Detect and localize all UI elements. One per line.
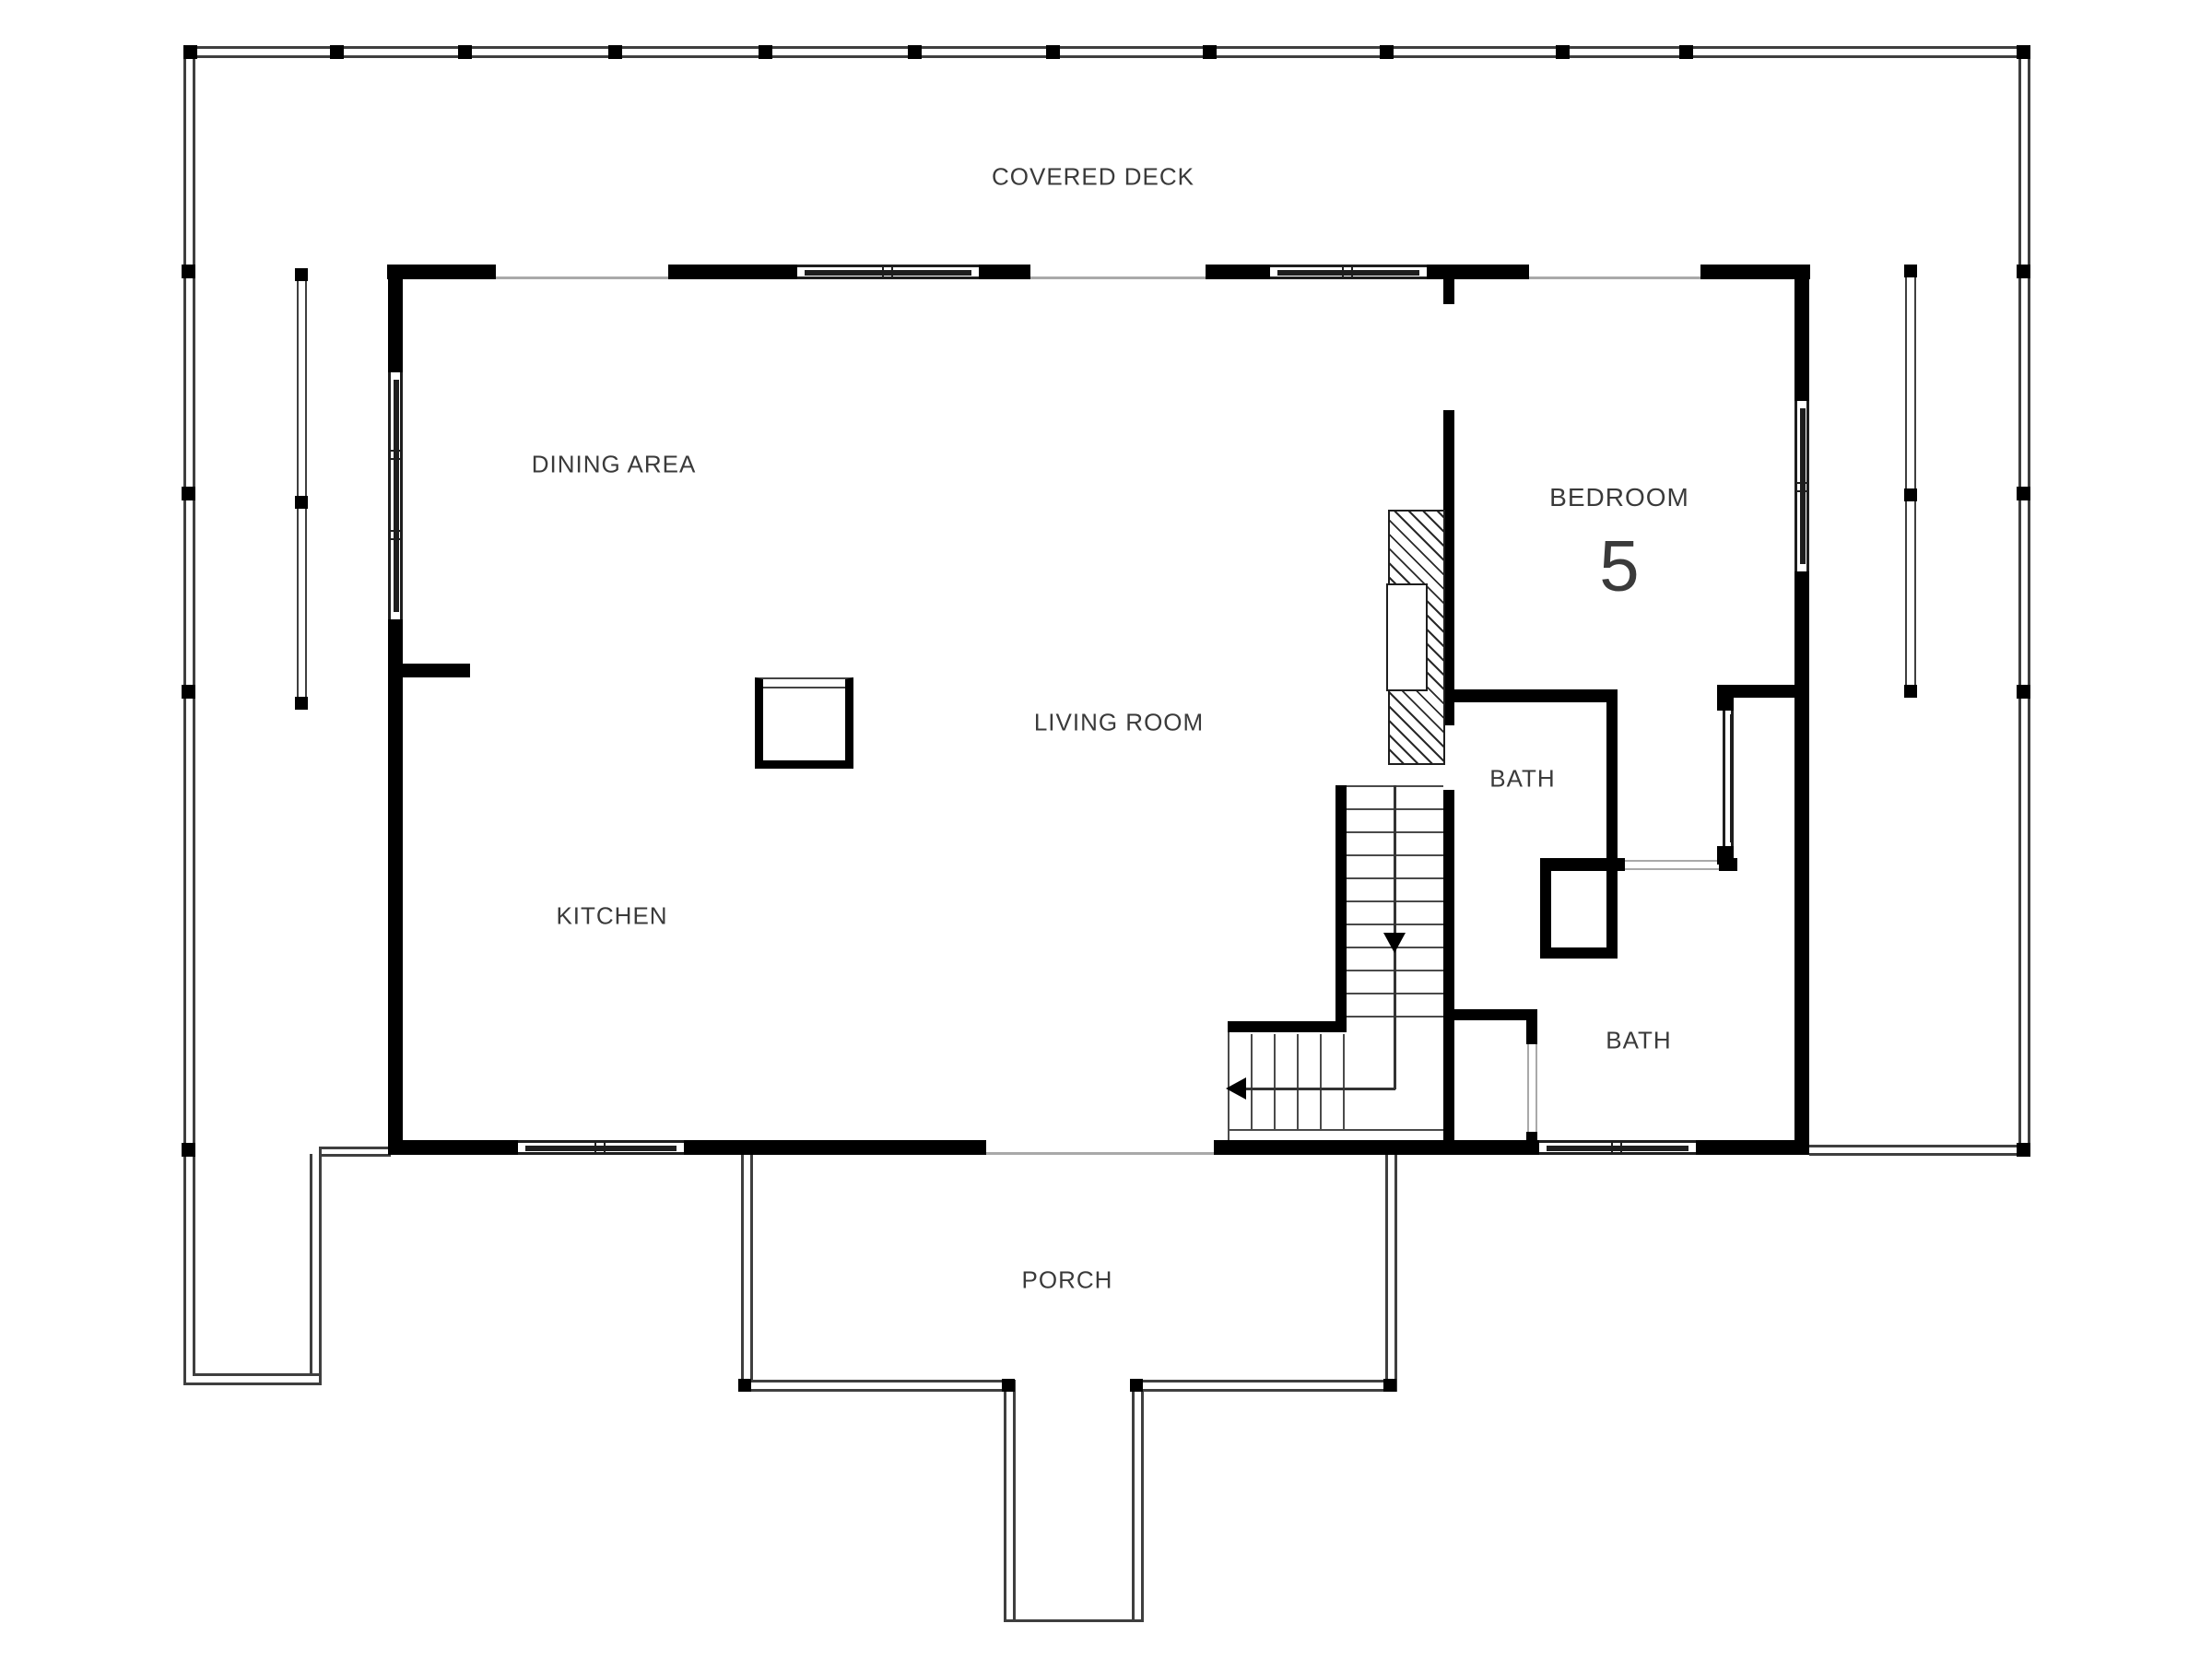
wall xyxy=(1526,1020,1537,1044)
wall xyxy=(1717,698,1734,711)
deck-post xyxy=(1380,45,1394,59)
porch-line xyxy=(1141,1380,1397,1382)
wall xyxy=(403,664,470,677)
window xyxy=(797,265,979,279)
window xyxy=(388,372,403,619)
deck-post xyxy=(2017,685,2030,699)
wall xyxy=(1606,702,1618,959)
stair-wall xyxy=(1335,785,1347,1032)
wall xyxy=(1540,858,1618,871)
door-opening-line xyxy=(1625,860,1719,862)
label-kitchen: KITCHEN xyxy=(556,902,667,931)
stair-wall xyxy=(1228,1021,1347,1032)
stair-direction-down-arrow-icon xyxy=(1383,933,1406,953)
wall xyxy=(1443,790,1454,1155)
label-bath-upper: BATH xyxy=(1489,765,1555,794)
label-bath-lower: BATH xyxy=(1606,1027,1671,1055)
porch-line xyxy=(1013,1380,1016,1622)
deck-line xyxy=(319,1154,391,1157)
deck-line xyxy=(193,1373,319,1376)
stair-tread xyxy=(1320,1034,1322,1129)
wall xyxy=(668,265,797,279)
deck-line xyxy=(2018,55,2021,1147)
deck-post xyxy=(330,45,344,59)
deck-line xyxy=(319,1147,391,1149)
stair-tread xyxy=(1274,1034,1276,1129)
porch-line xyxy=(1132,1380,1135,1622)
deck-post xyxy=(2017,45,2030,59)
deck-line xyxy=(1809,1145,2030,1147)
porch-line xyxy=(741,1155,744,1392)
porch-line xyxy=(1132,1389,1397,1392)
deck-post xyxy=(759,45,772,59)
label-bedroom: BEDROOM xyxy=(1549,483,1689,512)
wall xyxy=(1540,871,1551,959)
porch-line xyxy=(1141,1389,1144,1622)
rail-post xyxy=(1904,488,1917,501)
deck-post xyxy=(1046,45,1060,59)
porch-line xyxy=(750,1380,1006,1382)
wall xyxy=(1794,571,1809,1155)
deck-post xyxy=(458,45,472,59)
deck-post xyxy=(2017,487,2030,500)
deck-line xyxy=(183,1382,322,1385)
wall xyxy=(1214,1140,1539,1155)
deck-post xyxy=(608,45,622,59)
wall xyxy=(388,265,403,372)
door-opening-line xyxy=(1535,1044,1537,1132)
wall xyxy=(388,1140,518,1155)
wall xyxy=(388,619,403,1155)
wall xyxy=(387,265,496,279)
deck-line xyxy=(183,46,186,1385)
door-opening-line xyxy=(1625,868,1719,870)
porch-post xyxy=(1002,1379,1015,1392)
rail-post xyxy=(295,697,308,710)
deck-post xyxy=(2017,265,2030,278)
deck-post xyxy=(183,45,197,59)
deck-post xyxy=(1556,45,1570,59)
rail-post xyxy=(1904,265,1917,277)
stair-tread xyxy=(1297,1034,1299,1129)
wall xyxy=(684,1140,986,1155)
porch-post xyxy=(1383,1379,1396,1392)
deck-post xyxy=(182,265,195,278)
stair-edge-line xyxy=(1228,1129,1443,1131)
label-bedroom-number: 5 xyxy=(1599,524,1639,608)
wall xyxy=(1443,279,1454,304)
closet-door xyxy=(1723,711,1734,846)
deck-line xyxy=(193,55,195,1375)
label-living-room: LIVING ROOM xyxy=(1034,709,1204,737)
wall xyxy=(1794,265,1809,401)
porch-post xyxy=(1130,1379,1143,1392)
floor-plan: COVERED DECK DINING AREA KITCHEN LIVING … xyxy=(0,0,2212,1659)
deck-post xyxy=(182,1143,195,1157)
wall xyxy=(1526,1132,1537,1143)
deck-line xyxy=(310,1154,312,1376)
porch-line xyxy=(1394,1155,1397,1392)
deck-line xyxy=(1809,1153,2030,1156)
rail-line xyxy=(305,268,307,710)
deck-post xyxy=(1679,45,1693,59)
label-porch: PORCH xyxy=(1022,1266,1113,1295)
porch-line xyxy=(1004,1619,1144,1622)
fireplace-firebox xyxy=(1386,583,1428,691)
opening-sill xyxy=(1529,276,1700,279)
window xyxy=(518,1140,684,1155)
rail-line xyxy=(297,268,299,710)
deck-post xyxy=(2017,1143,2030,1157)
window xyxy=(1539,1140,1696,1155)
deck-post xyxy=(182,487,195,500)
window xyxy=(1270,265,1427,279)
stair-path-line xyxy=(1239,1088,1395,1090)
door-opening-line xyxy=(1527,1044,1529,1132)
wall xyxy=(1454,689,1618,702)
wall xyxy=(979,265,1030,279)
deck-post xyxy=(908,45,922,59)
stair-direction-left-arrow-icon xyxy=(1226,1077,1246,1100)
wall xyxy=(1717,846,1734,865)
rail-post xyxy=(295,496,308,509)
rail-post xyxy=(1904,685,1917,698)
deck-post xyxy=(1203,45,1217,59)
stair-tread xyxy=(1343,1034,1345,1129)
wall xyxy=(1454,1009,1537,1020)
island-counter-line xyxy=(763,687,845,688)
wall xyxy=(1696,1140,1809,1155)
rail-line xyxy=(1914,265,1916,698)
window xyxy=(1794,401,1809,571)
label-covered-deck: COVERED DECK xyxy=(992,163,1194,192)
rail-line xyxy=(1905,265,1907,698)
wall xyxy=(1206,265,1270,279)
rail-post xyxy=(295,268,308,281)
kitchen-island xyxy=(755,677,853,769)
wall xyxy=(1540,947,1618,959)
label-dining-area: DINING AREA xyxy=(532,451,697,479)
porch-post xyxy=(738,1379,751,1392)
wall xyxy=(1427,265,1529,279)
porch-line xyxy=(1385,1155,1388,1382)
deck-line xyxy=(319,1147,322,1385)
porch-line xyxy=(1004,1389,1006,1622)
opening-sill xyxy=(1030,276,1206,279)
wall xyxy=(1717,685,1794,698)
opening-sill xyxy=(986,1152,1214,1155)
deck-line xyxy=(2028,46,2030,1156)
porch-line xyxy=(750,1155,753,1382)
porch-line xyxy=(741,1389,1016,1392)
deck-post xyxy=(182,685,195,699)
opening-sill xyxy=(496,276,668,279)
stair-tread xyxy=(1251,1034,1253,1129)
